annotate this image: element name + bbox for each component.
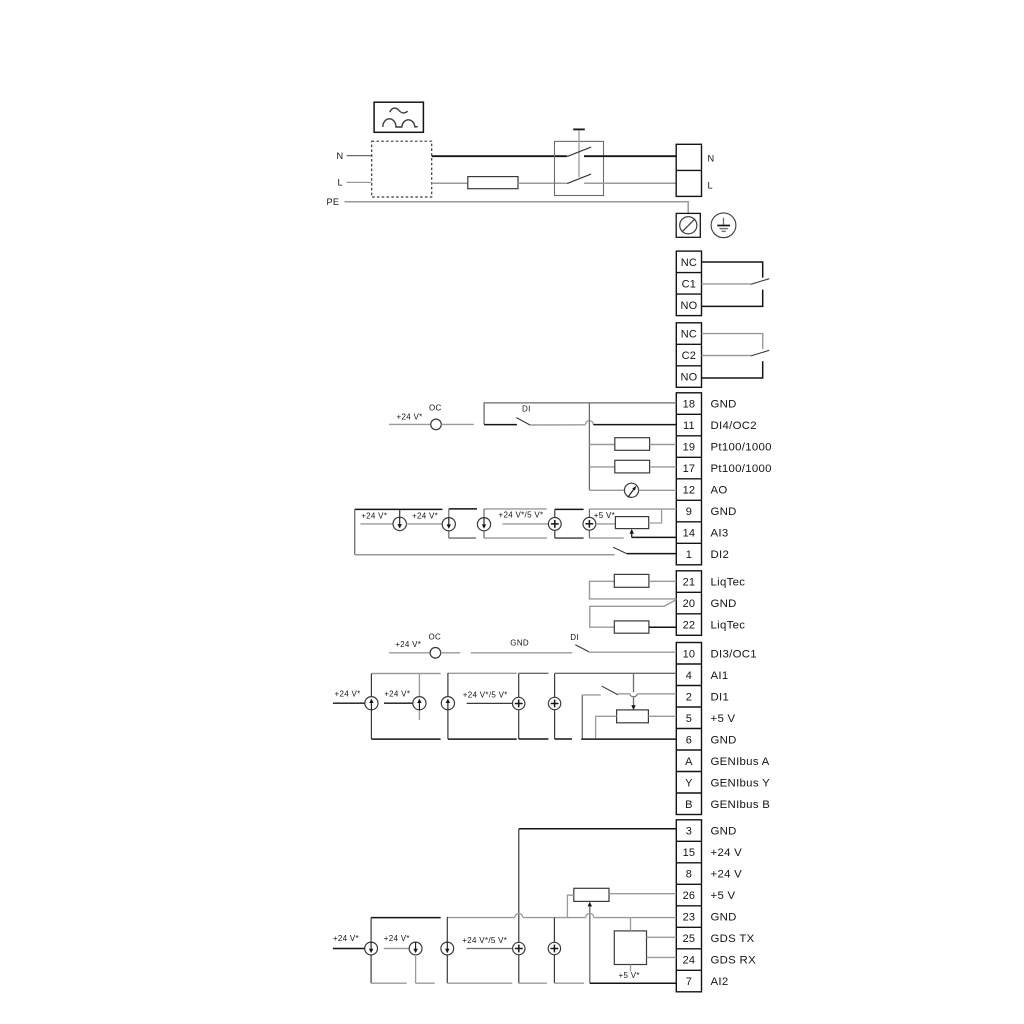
svg-text:AO: AO: [711, 485, 728, 497]
svg-text:22: 22: [683, 620, 696, 632]
svg-text:B: B: [685, 799, 693, 811]
svg-text:18: 18: [683, 399, 696, 411]
svg-text:N: N: [708, 154, 715, 164]
svg-text:+24 V: +24 V: [711, 847, 743, 859]
svg-text:GDS RX: GDS RX: [711, 955, 757, 967]
svg-text:+24 V*: +24 V*: [361, 511, 387, 520]
svg-text:C1: C1: [682, 278, 696, 290]
svg-text:Y: Y: [685, 777, 693, 789]
svg-text:DI3/OC1: DI3/OC1: [711, 648, 757, 660]
svg-text:GENIbus B: GENIbus B: [711, 799, 771, 811]
svg-text:3: 3: [686, 826, 692, 838]
svg-text:N: N: [337, 151, 344, 161]
svg-text:8: 8: [686, 869, 692, 881]
svg-text:19: 19: [683, 442, 696, 454]
svg-text:LiqTec: LiqTec: [711, 620, 746, 632]
svg-text:2: 2: [686, 691, 692, 703]
svg-text:DI2: DI2: [711, 549, 730, 561]
svg-text:+24 V*: +24 V*: [412, 511, 438, 520]
svg-text:NC: NC: [681, 257, 697, 269]
svg-text:17: 17: [683, 463, 696, 475]
svg-text:Pt100/1000: Pt100/1000: [711, 442, 772, 454]
svg-text:5: 5: [686, 713, 692, 725]
svg-text:23: 23: [683, 912, 696, 924]
svg-text:+24 V*: +24 V*: [384, 690, 410, 699]
svg-text:+24 V*/5 V*: +24 V*/5 V*: [463, 690, 508, 699]
svg-text:+24 V: +24 V: [711, 869, 743, 881]
svg-text:GND: GND: [510, 639, 529, 648]
svg-text:21: 21: [683, 577, 696, 589]
svg-text:14: 14: [683, 528, 696, 540]
svg-text:GND: GND: [711, 734, 737, 746]
svg-text:GND: GND: [711, 912, 737, 924]
svg-text:DI1: DI1: [711, 691, 730, 703]
svg-text:6: 6: [686, 734, 692, 746]
svg-text:+24 V*: +24 V*: [333, 934, 359, 943]
svg-text:+5 V*: +5 V*: [619, 971, 640, 980]
svg-text:C2: C2: [682, 350, 696, 362]
svg-text:DI4/OC2: DI4/OC2: [711, 420, 757, 432]
svg-text:DI: DI: [570, 633, 579, 642]
svg-text:OC: OC: [429, 632, 442, 641]
svg-text:NO: NO: [680, 300, 697, 312]
svg-text:AI2: AI2: [711, 976, 729, 988]
svg-text:+5 V: +5 V: [711, 713, 736, 725]
svg-text:+24 V*: +24 V*: [384, 934, 410, 943]
svg-text:15: 15: [683, 847, 696, 859]
svg-text:7: 7: [686, 976, 692, 988]
svg-text:+24 V*: +24 V*: [335, 690, 361, 699]
svg-text:+24 V*: +24 V*: [395, 640, 421, 649]
svg-text:GDS TX: GDS TX: [711, 933, 755, 945]
svg-text:20: 20: [683, 598, 696, 610]
svg-text:PE: PE: [327, 197, 340, 207]
svg-text:AI3: AI3: [711, 528, 729, 540]
svg-text:12: 12: [683, 485, 696, 497]
svg-text:GND: GND: [711, 506, 737, 518]
svg-text:GENIbus Y: GENIbus Y: [711, 777, 771, 789]
svg-text:LiqTec: LiqTec: [711, 577, 746, 589]
svg-text:NO: NO: [680, 372, 697, 384]
svg-text:4: 4: [686, 670, 692, 682]
svg-text:26: 26: [683, 890, 696, 902]
svg-text:24: 24: [683, 955, 696, 967]
svg-text:NC: NC: [681, 329, 697, 341]
svg-text:10: 10: [683, 648, 696, 660]
svg-text:A: A: [685, 756, 693, 768]
svg-text:GND: GND: [711, 598, 737, 610]
svg-text:+5 V: +5 V: [711, 890, 736, 902]
svg-text:OC: OC: [429, 404, 442, 413]
svg-text:+24 V*/5 V*: +24 V*/5 V*: [462, 936, 507, 945]
svg-text:+24 V*: +24 V*: [397, 413, 423, 422]
svg-text:L: L: [708, 180, 713, 190]
svg-text:Pt100/1000: Pt100/1000: [711, 463, 772, 475]
svg-text:GND: GND: [711, 826, 737, 838]
svg-text:L: L: [338, 178, 343, 188]
svg-text:25: 25: [683, 933, 696, 945]
svg-text:9: 9: [686, 506, 692, 518]
svg-text:GENIbus A: GENIbus A: [711, 756, 770, 768]
svg-text:GND: GND: [711, 399, 737, 411]
svg-text:+5 V*: +5 V*: [594, 511, 615, 520]
svg-text:DI: DI: [522, 404, 531, 413]
svg-text:AI1: AI1: [711, 670, 729, 682]
svg-text:11: 11: [683, 420, 695, 432]
svg-text:+24 V*/5 V*: +24 V*/5 V*: [499, 510, 544, 519]
svg-text:1: 1: [686, 549, 692, 561]
